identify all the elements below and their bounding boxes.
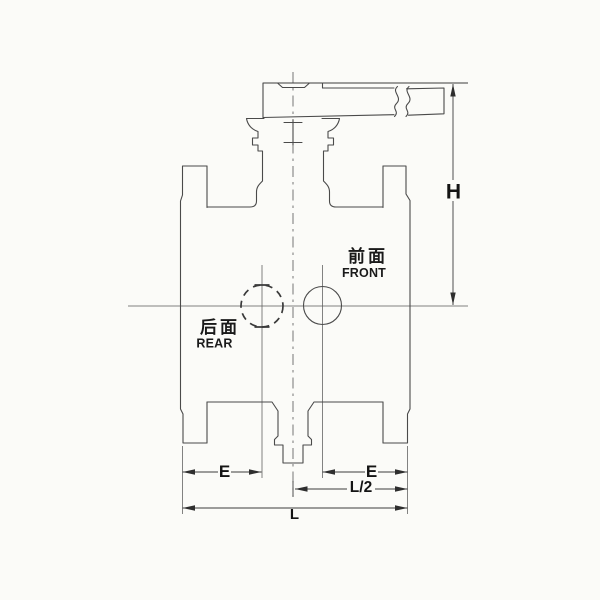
label-E-left: E <box>219 462 230 481</box>
drawing-canvas: H E E L/2 L 前面 FRONT 后面 REAR <box>0 0 600 600</box>
dimension-L: L <box>183 505 408 523</box>
arrow-up <box>450 84 455 97</box>
dimension-E-left: E <box>183 462 262 481</box>
label-front-cn: 前面 <box>348 246 388 266</box>
centerlines <box>128 72 468 514</box>
arrow-right <box>395 505 408 510</box>
handle-head-dish <box>278 83 310 88</box>
break-symbol-left <box>395 87 399 117</box>
handle-end-piece <box>407 88 445 115</box>
label-L2: L/2 <box>350 479 372 496</box>
label-L: L <box>290 506 299 523</box>
annotations: 前面 FRONT 后面 REAR <box>196 246 388 351</box>
valve-drawing: H E E L/2 L 前面 FRONT 后面 REAR <box>0 0 600 600</box>
valve-body-outline <box>181 119 411 464</box>
stem-section <box>284 120 302 145</box>
right-flange <box>383 166 410 443</box>
label-rear-en: REAR <box>196 337 232 351</box>
label-rear-cn: 后面 <box>200 318 240 337</box>
dimension-L2: L/2 <box>295 479 408 496</box>
label-front-en: FRONT <box>342 266 386 280</box>
dimension-H: H <box>444 84 463 305</box>
arrow-left <box>183 469 196 474</box>
arrow-down <box>450 293 455 306</box>
arrow-left <box>183 505 196 510</box>
arrow-left <box>295 486 308 491</box>
bonnet-left-profile <box>207 119 264 208</box>
body-bottom-drain-boss <box>207 402 383 463</box>
label-H: H <box>446 181 461 204</box>
arrow-right <box>395 486 408 491</box>
arrow-right <box>249 469 262 474</box>
handle-lever <box>263 83 444 118</box>
break-symbol-right <box>406 87 410 117</box>
arrow-left <box>323 469 336 474</box>
handle-bar-bottom <box>263 115 394 118</box>
left-flange <box>181 166 208 443</box>
bonnet-right-profile <box>322 119 383 208</box>
arrow-right <box>395 469 408 474</box>
